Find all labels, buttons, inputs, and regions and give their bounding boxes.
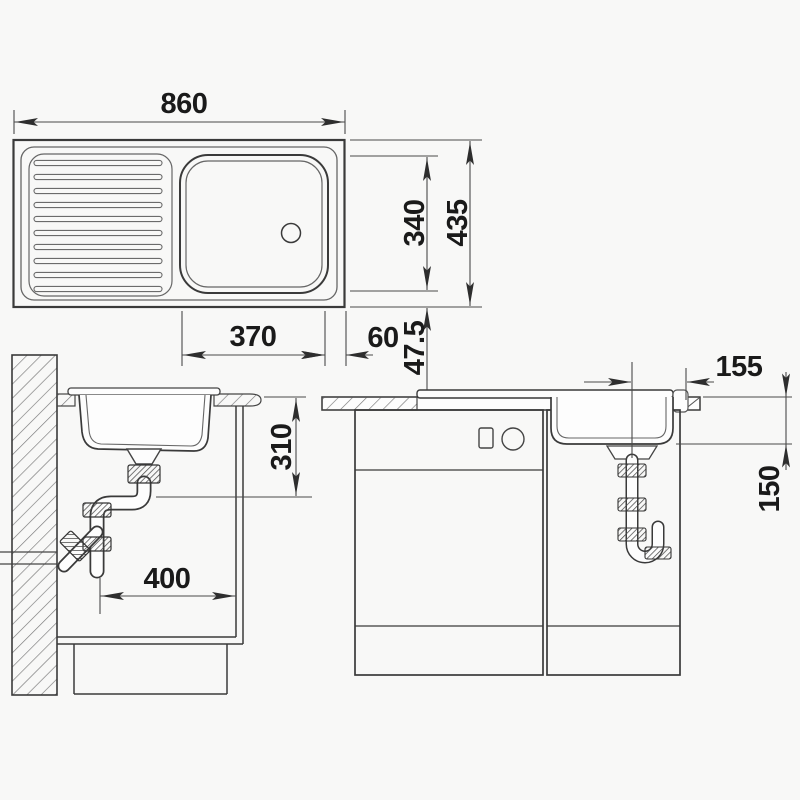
drainboard-ribs: [34, 160, 162, 291]
dimension-edge-margin-47-5: 47.5: [399, 308, 431, 390]
dim-label-155: 155: [716, 351, 763, 383]
wall-section: [12, 355, 57, 695]
dim-label-860: 860: [161, 88, 208, 120]
dimension-width-860: 860: [14, 88, 345, 134]
bowl-top-view: [180, 155, 328, 293]
bowl-front-fill: [551, 397, 673, 444]
top-view: 860 340: [14, 88, 483, 390]
drain-hole: [282, 224, 301, 243]
drawing-svg: 860 340: [0, 0, 800, 800]
bowl-inner-edge: [186, 161, 322, 287]
dim-label-340: 340: [399, 200, 431, 247]
dim-label-310: 310: [266, 424, 298, 471]
drain-funnel: [127, 449, 161, 464]
dim-label-60: 60: [367, 322, 398, 354]
sink-rim-front: [417, 390, 673, 398]
dim-label-47-5: 47.5: [399, 320, 431, 375]
side-section-view: 310 400: [0, 355, 312, 695]
dimension-right-margin-60: 60: [299, 311, 399, 366]
counter-cut-front: [322, 397, 417, 410]
appliance-switch-symbol: [479, 428, 493, 448]
bowl-section-outer: [79, 395, 211, 451]
dimension-bowl-height-150: 150: [676, 372, 792, 512]
front-view: 155 150: [322, 351, 792, 675]
dim-label-370: 370: [230, 321, 277, 353]
counter-cut-right: [214, 394, 261, 406]
dimension-trap-clearance-400: 400: [100, 563, 236, 614]
drainboard-outline: [29, 154, 172, 296]
dim-label-150: 150: [754, 466, 786, 513]
counter-cut-left: [57, 394, 75, 406]
dim-label-435: 435: [442, 199, 474, 246]
dim-label-400: 400: [144, 563, 191, 595]
dimension-total-depth-435: 435: [442, 141, 474, 306]
pipe-nuts-side: [59, 465, 160, 562]
technical-drawing-sink: 860 340: [0, 0, 800, 800]
sink-rim-side: [68, 388, 220, 395]
appliance-knob-symbol: [502, 428, 524, 450]
